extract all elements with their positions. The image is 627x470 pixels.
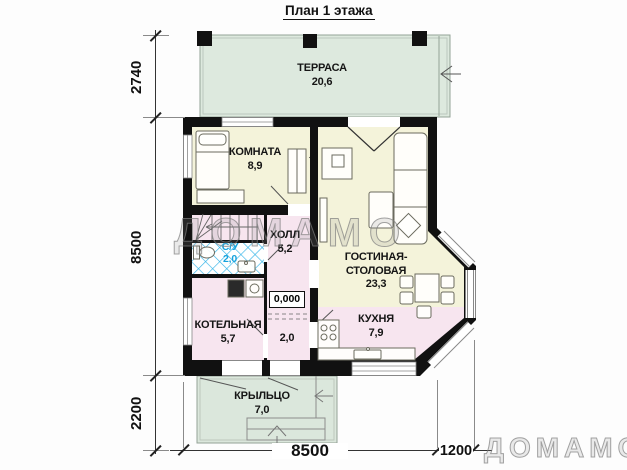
hall-living-opening bbox=[309, 260, 319, 288]
chair bbox=[441, 276, 454, 288]
room-label-bedroom: КОМНАТА 8,9 bbox=[205, 146, 305, 173]
room-label-terrace: ТЕРРАСА 20,6 bbox=[259, 62, 385, 89]
room-label-living: ГОСТИНАЯ-СТОЛОВАЯ 23,3 bbox=[322, 251, 430, 292]
extension-line bbox=[474, 340, 475, 448]
dim-house-width: 8500 bbox=[272, 443, 348, 459]
chair bbox=[400, 292, 413, 304]
dim-bay-width: 1200 bbox=[439, 444, 473, 458]
room-label-boiler: КОТЕЛЬНАЯ 5,7 bbox=[186, 319, 270, 346]
room-area: 23,3 bbox=[322, 278, 430, 292]
extension-line bbox=[143, 375, 185, 376]
washing-machine bbox=[246, 280, 263, 297]
entrance-door-opening bbox=[270, 361, 300, 376]
room-area: 2,0 bbox=[271, 332, 303, 346]
chair bbox=[441, 292, 454, 304]
chair bbox=[417, 306, 431, 318]
elevation-mark: 0,000 bbox=[269, 291, 305, 308]
extension-line bbox=[183, 382, 184, 448]
watermark-corner: ДОМАМО bbox=[484, 431, 627, 465]
room-area: 5,7 bbox=[186, 333, 270, 347]
kitchen-sink bbox=[354, 350, 381, 359]
room-area: 7,9 bbox=[340, 327, 412, 341]
terrace-column bbox=[197, 31, 212, 46]
extension-line bbox=[437, 380, 438, 448]
room-name: КРЫЛЬЦО bbox=[216, 390, 308, 404]
room-label-porch: КРЫЛЬЦО 7,0 bbox=[216, 390, 308, 417]
room-name: КОМНАТА bbox=[205, 146, 305, 160]
kitchen-window bbox=[352, 362, 416, 376]
room-name: КУХНЯ bbox=[340, 313, 412, 327]
room-label-tambour: 2,0 bbox=[271, 332, 303, 346]
plan-title: План 1 этажа bbox=[283, 3, 375, 20]
room-name: ТЕРРАСА bbox=[259, 62, 385, 76]
terrace-column bbox=[412, 31, 427, 46]
floor-plan-canvas: План 1 этажа bbox=[0, 0, 627, 470]
terrace-column bbox=[303, 34, 317, 48]
terrace-door-opening bbox=[348, 117, 400, 127]
room-name: КОТЕЛЬНАЯ bbox=[186, 319, 270, 333]
dim-porch-depth: 2200 bbox=[128, 387, 146, 439]
dim-house-depth: 8500 bbox=[128, 221, 146, 273]
extension-line bbox=[143, 117, 185, 118]
watermark-center: ДОМАМО bbox=[158, 210, 424, 256]
room-area: 20,6 bbox=[259, 76, 385, 90]
stove bbox=[318, 320, 339, 348]
boiler-porch-door-opening bbox=[222, 361, 262, 376]
room-label-kitchen: КУХНЯ 7,9 bbox=[340, 313, 412, 340]
dim-terrace-depth: 2740 bbox=[128, 51, 146, 103]
boiler-unit bbox=[228, 280, 244, 297]
room-area: 8,9 bbox=[205, 160, 305, 174]
left-dimension-line bbox=[155, 30, 156, 454]
bed-pillow bbox=[199, 134, 226, 145]
room-area: 7,0 bbox=[216, 404, 308, 418]
dresser bbox=[197, 190, 244, 203]
